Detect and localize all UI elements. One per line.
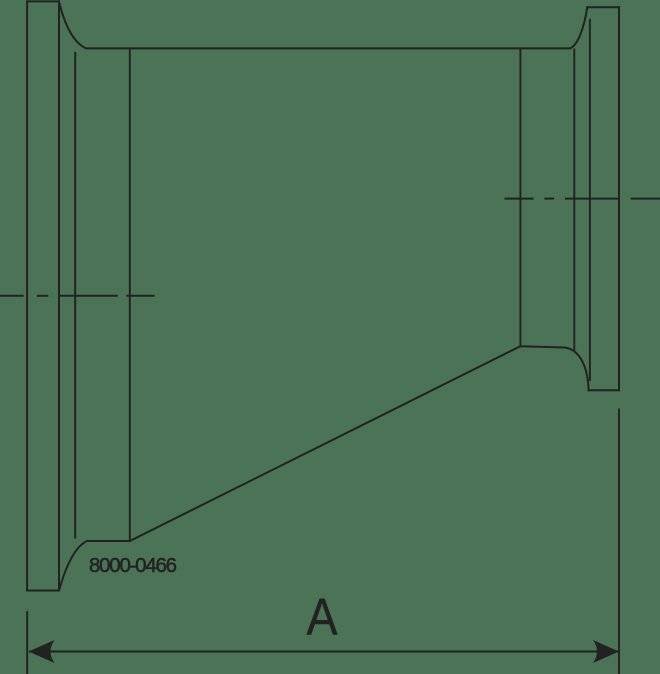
svg-text:A: A [307, 589, 338, 647]
svg-text:8000-0466: 8000-0466 [89, 554, 177, 577]
